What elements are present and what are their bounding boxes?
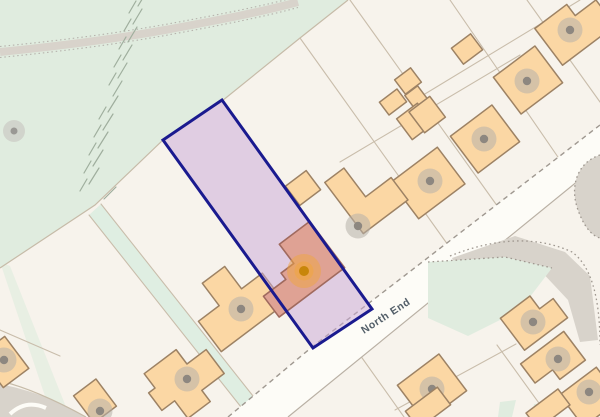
map-canvas[interactable]: North End xyxy=(0,0,600,417)
building-canopy-dot-icon xyxy=(418,169,443,194)
building-canopy-dot-icon xyxy=(472,127,497,152)
building-canopy-dot-icon xyxy=(558,18,583,43)
building-canopy-dot-icon xyxy=(346,214,371,239)
building-canopy-dot-icon xyxy=(546,347,571,372)
building-canopy-dot-icon xyxy=(229,297,254,322)
property-marker-icon[interactable] xyxy=(287,254,321,288)
building-canopy-dot-icon xyxy=(521,310,546,335)
building-canopy-dot-icon xyxy=(515,69,540,94)
building-canopy-dot-icon xyxy=(175,367,200,392)
tree-icon xyxy=(3,120,25,142)
map-frame: North End xyxy=(0,0,600,417)
